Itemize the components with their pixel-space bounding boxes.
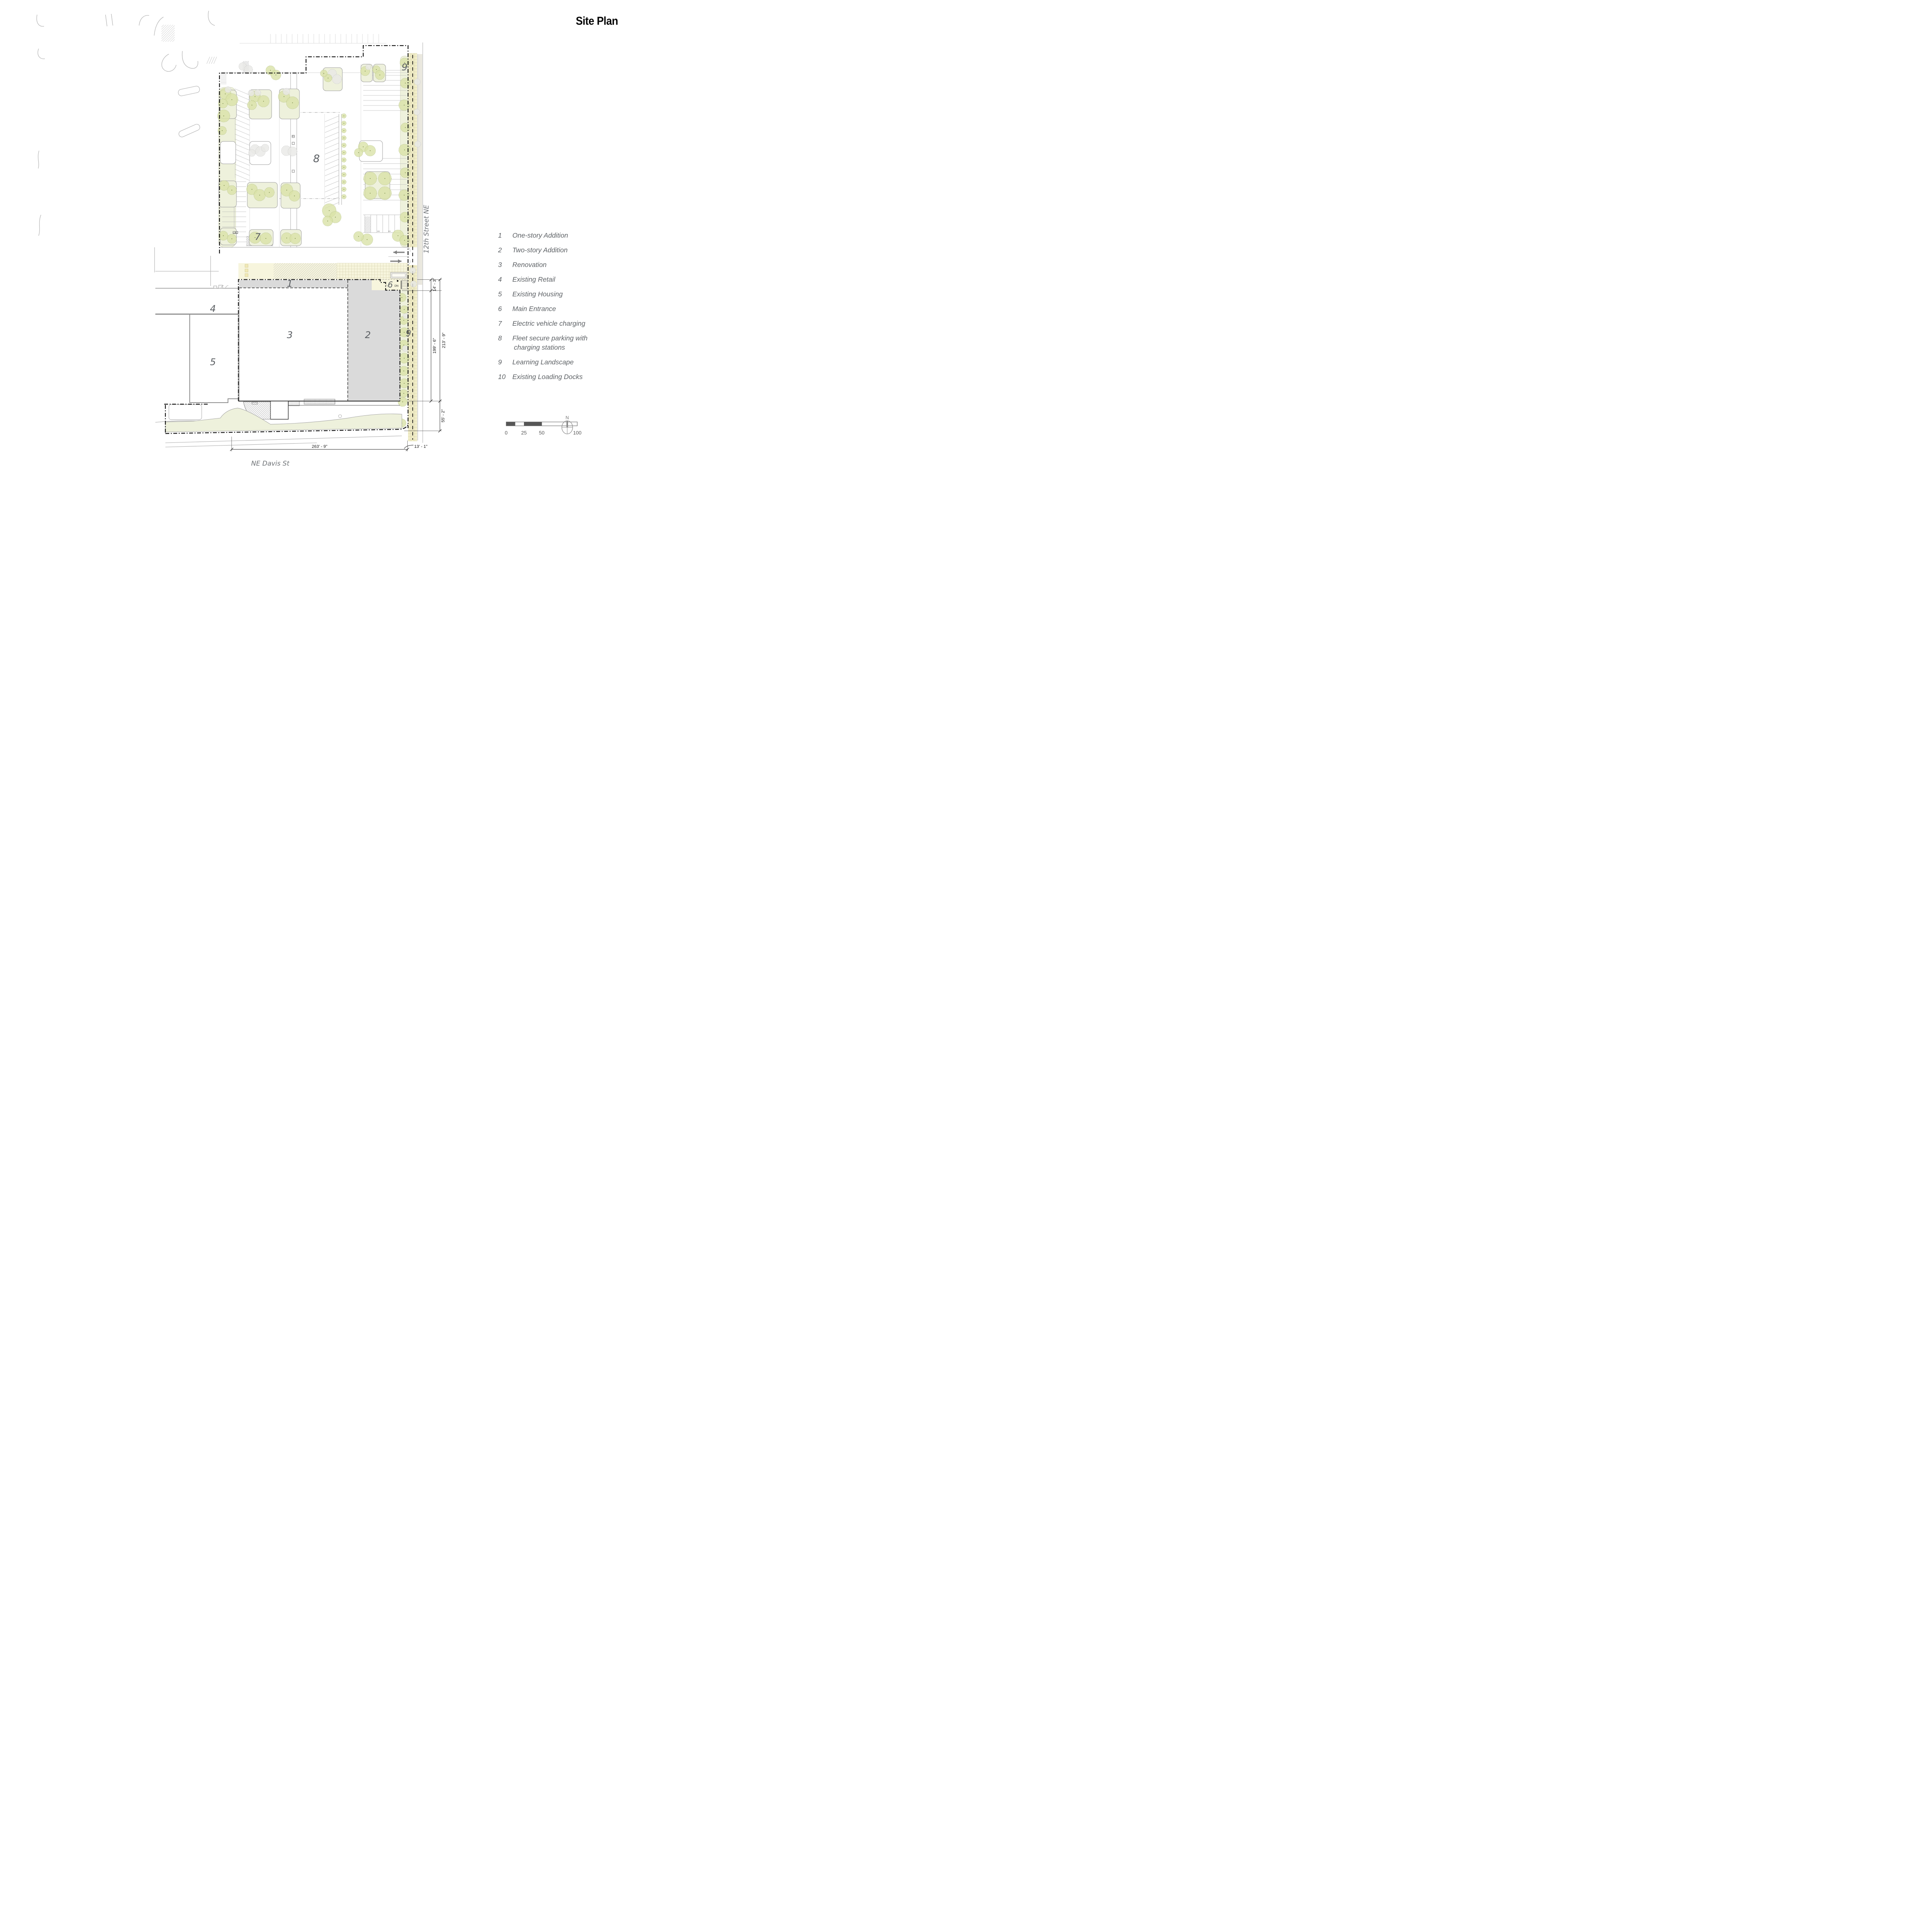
- planting-islands: [219, 64, 390, 246]
- existing-tree: [248, 90, 254, 96]
- sidewalk-12th-street: [408, 43, 423, 443]
- svg-text:1: 1: [287, 278, 293, 289]
- svg-text:9: 9: [401, 62, 407, 73]
- svg-text:199' - 6": 199' - 6": [432, 338, 437, 354]
- svg-text:DN: DN: [395, 285, 398, 287]
- site-plan-page: { "title": {"text": "Site Plan"}, "legen…: [0, 0, 638, 493]
- existing-tree: [283, 88, 290, 95]
- svg-text:0: 0: [505, 430, 507, 435]
- existing-tree: [414, 109, 420, 115]
- svg-text:13' - 1": 13' - 1": [414, 444, 427, 449]
- existing-tree: [415, 141, 421, 147]
- svg-text:7: 7: [255, 231, 261, 242]
- existing-tree: [255, 90, 261, 96]
- existing-tree: [332, 75, 342, 84]
- existing-tree: [366, 65, 371, 70]
- existing-tree: [288, 147, 297, 156]
- svg-text:8: 8: [313, 153, 320, 165]
- svg-text:5: 5: [210, 357, 216, 367]
- existing-tree: [410, 281, 417, 287]
- scale-bar: 02550100: [505, 422, 581, 435]
- svg-text:100: 100: [573, 430, 582, 435]
- svg-text:4: 4: [210, 303, 216, 314]
- svg-text:14' - 3": 14' - 3": [432, 278, 437, 291]
- existing-tree: [402, 345, 408, 352]
- svg-text:6: 6: [388, 280, 393, 289]
- svg-text:213' - 9": 213' - 9": [442, 333, 446, 348]
- svg-text:N: N: [566, 415, 569, 420]
- svg-text:EV: EV: [378, 230, 380, 232]
- svg-text:3: 3: [287, 330, 293, 340]
- svg-text:12th Street NE: 12th Street NE: [423, 205, 430, 253]
- existing-tree: [244, 65, 253, 74]
- svg-text:55' - 2": 55' - 2": [441, 409, 446, 422]
- site-plan-drawing: EVEVEVEVEVDN263' - 9"13' - 1"14' - 3"199…: [0, 0, 638, 493]
- svg-text:EV: EV: [292, 135, 294, 137]
- svg-text:50: 50: [539, 430, 544, 435]
- svg-text:NE Davis St: NE Davis St: [251, 460, 290, 468]
- existing-tree: [248, 150, 255, 156]
- svg-text:25: 25: [521, 430, 527, 435]
- svg-text:EV: EV: [388, 230, 391, 232]
- traffic-arrows: [390, 250, 405, 263]
- existing-tree: [414, 79, 420, 85]
- svg-text:9: 9: [406, 329, 411, 338]
- svg-text:EV: EV: [233, 232, 235, 234]
- svg-text:263' - 9": 263' - 9": [312, 444, 327, 449]
- existing-tree: [225, 87, 231, 93]
- svg-text:2: 2: [365, 330, 371, 340]
- svg-text:EV: EV: [236, 232, 238, 234]
- existing-tree: [410, 267, 416, 274]
- existing-tree: [261, 144, 269, 152]
